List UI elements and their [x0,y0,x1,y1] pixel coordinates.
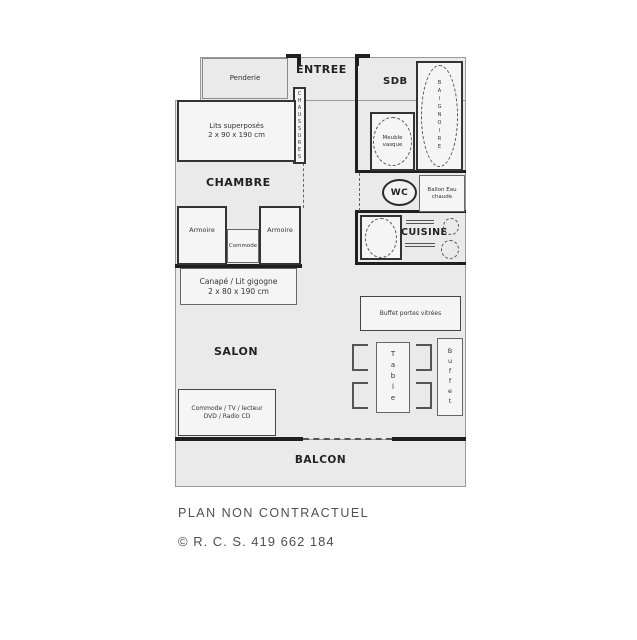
vanity-unit: Meuble vasque [370,112,415,171]
vanity-label: Meuble [382,135,402,142]
toilet: WC [382,179,417,206]
vanity-label2: vasque [383,142,403,149]
hall-dashed-left [303,163,304,208]
wardrobe-right-label: Armoire [267,226,293,234]
tv-unit-label2: DVD / Radio CD [204,413,251,421]
dresser-small-label: Commode [229,243,257,250]
kitchen-sink-unit [360,215,402,260]
bathroom-left-wall [355,55,358,172]
sideboard-wall: Buffet portes vitrées [360,296,461,331]
sofa-bed-dimensions: 2 x 80 x 190 cm [208,287,269,296]
sofa-bed: Canapé / Lit gigogne 2 x 80 x 190 cm [180,268,297,305]
tv-unit-label: Commode / TV / lecteur [191,405,262,413]
bunk-bed-label: Lits superposés [209,122,264,131]
kitchen-counter-line1 [406,220,434,221]
dining-table-label: Table [389,350,397,405]
kitchen-left-wall [355,210,358,265]
sofa-bed-label: Canapé / Lit gigogne [200,277,278,286]
kitchen-counter-line2 [406,223,434,224]
bunk-bed-dimensions: 2 x 90 x 190 cm [208,131,265,140]
wardrobe-left-label: Armoire [189,226,215,234]
balcony-wall-left [175,437,303,441]
water-heater-label2: chaude [432,194,452,201]
kitchen-counter-line3 [405,243,435,244]
vanity-basin: Meuble vasque [373,117,412,166]
kitchen-bottom-wall [355,262,466,265]
hob-burner-top [443,218,459,235]
chair-left-top [352,344,368,371]
chair-left-bottom [352,382,368,409]
room-label-entree: ENTREE [296,63,347,76]
chair-right-bottom [416,382,432,409]
hob-burner-bottom [441,240,459,259]
kitchen-sink-basin [365,218,397,258]
sideboard-side-label: Buffet [446,347,454,407]
penderie-closet: Penderie [202,58,288,99]
water-heater: Ballon Eau chaude [419,175,465,212]
toilet-label: WC [391,188,409,198]
bunk-bed: Lits superposés 2 x 90 x 190 cm [177,100,296,162]
wc-dashed-left [359,173,360,211]
balcony-wall-right [392,437,466,441]
bathtub-basin: BAIGNOIRE [421,65,458,167]
wardrobe-left: Armoire [177,206,227,265]
bathtub-label: BAIGNOIRE [437,80,443,152]
shoe-cabinet-label: CHAUSSURES [297,91,303,161]
balcony-window-dashed [303,438,392,440]
room-label-balcon: BALCON [175,454,466,466]
penderie-label: Penderie [230,74,261,83]
sideboard-side: Buffet [437,338,463,416]
dining-table: Table [376,342,410,413]
wardrobe-right: Armoire [259,206,301,265]
sideboard-wall-label: Buffet portes vitrées [380,310,441,318]
room-label-chambre: CHAMBRE [206,176,271,189]
room-label-sdb: SDB [383,76,408,87]
floor-plan-page: Penderie ENTREE CHAUSSURES Lits superpos… [0,0,637,640]
chair-right-top [416,344,432,371]
room-label-cuisine: CUISINE [401,227,448,238]
room-label-salon: SALON [214,345,258,358]
kitchen-counter-line4 [405,246,435,247]
plan-registration: © R. C. S. 419 662 184 [178,534,335,549]
bathtub: BAIGNOIRE [416,61,463,171]
dresser-small: Commode [227,229,259,263]
plan-disclaimer: PLAN NON CONTRACTUEL [178,506,369,520]
tv-unit: Commode / TV / lecteur DVD / Radio CD [178,389,276,436]
water-heater-label: Ballon Eau [427,187,456,194]
